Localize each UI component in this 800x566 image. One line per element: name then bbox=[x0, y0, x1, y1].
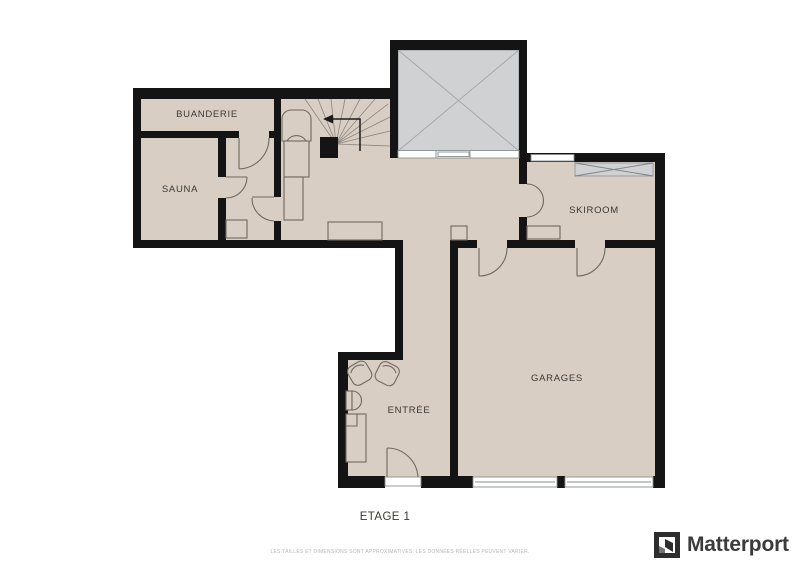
wall-bottom-left bbox=[133, 240, 403, 248]
wall-void-left bbox=[390, 40, 398, 158]
opening-sauna-wc bbox=[218, 177, 226, 198]
opening-hall-garage bbox=[477, 240, 507, 248]
room-label-entree: ENTRÉE bbox=[388, 405, 431, 416]
room-label-skiroom: SKIROOM bbox=[569, 205, 619, 216]
wall-corridor-left bbox=[395, 240, 403, 360]
opening-hall-skiroom bbox=[519, 184, 527, 217]
window-band-inner bbox=[438, 152, 469, 157]
floor-corridor bbox=[403, 240, 450, 362]
wall-top bbox=[133, 88, 397, 99]
entree-door-threshold bbox=[385, 477, 421, 486]
wall-garage-left bbox=[450, 240, 458, 488]
wall-outer-left bbox=[133, 88, 141, 248]
wall-bottom-seg1 bbox=[338, 476, 385, 488]
room-floor-garages bbox=[458, 248, 655, 478]
hall-sideboard bbox=[328, 222, 382, 240]
wall-outer-right bbox=[655, 153, 665, 488]
matterport-logo-icon bbox=[653, 531, 681, 559]
floorplan-page: BUANDERIE SAUNA SKIROOM GARAGES ENTRÉE E… bbox=[0, 0, 800, 566]
matterport-logo: Matterport bbox=[653, 531, 789, 559]
opening-skiroom-garage bbox=[575, 240, 605, 248]
room-label-sauna: SAUNA bbox=[162, 184, 198, 195]
window-skiroom bbox=[531, 155, 574, 162]
wc-fixture bbox=[226, 220, 247, 238]
ski-rack bbox=[575, 163, 653, 176]
matterport-logo-text: Matterport bbox=[687, 533, 789, 557]
wall-void-top bbox=[390, 40, 527, 50]
floor-title: ETAGE 1 bbox=[300, 511, 470, 523]
wall-void-right bbox=[519, 40, 527, 158]
void-area bbox=[398, 50, 519, 151]
room-label-buanderie: BUANDERIE bbox=[176, 109, 238, 120]
opening-wc-hall bbox=[274, 197, 281, 221]
skiroom-shelf bbox=[527, 226, 560, 239]
wall-bottom-seg2 bbox=[421, 476, 473, 488]
entree-console bbox=[346, 414, 366, 462]
hall-basin bbox=[282, 110, 311, 141]
wall-bottom-seg3 bbox=[557, 476, 565, 488]
floorplan-drawing: BUANDERIE SAUNA SKIROOM GARAGES ENTRÉE bbox=[0, 0, 800, 566]
hall-cabinet-upper bbox=[284, 141, 309, 177]
hall-cabinet-lower bbox=[284, 177, 303, 220]
opening-buanderie-wc bbox=[239, 131, 269, 138]
entree-wall-fixture-base bbox=[346, 391, 352, 410]
hall-small-box bbox=[451, 226, 467, 240]
stair-newel-post bbox=[320, 137, 338, 158]
room-label-garages: GARAGES bbox=[531, 373, 583, 384]
